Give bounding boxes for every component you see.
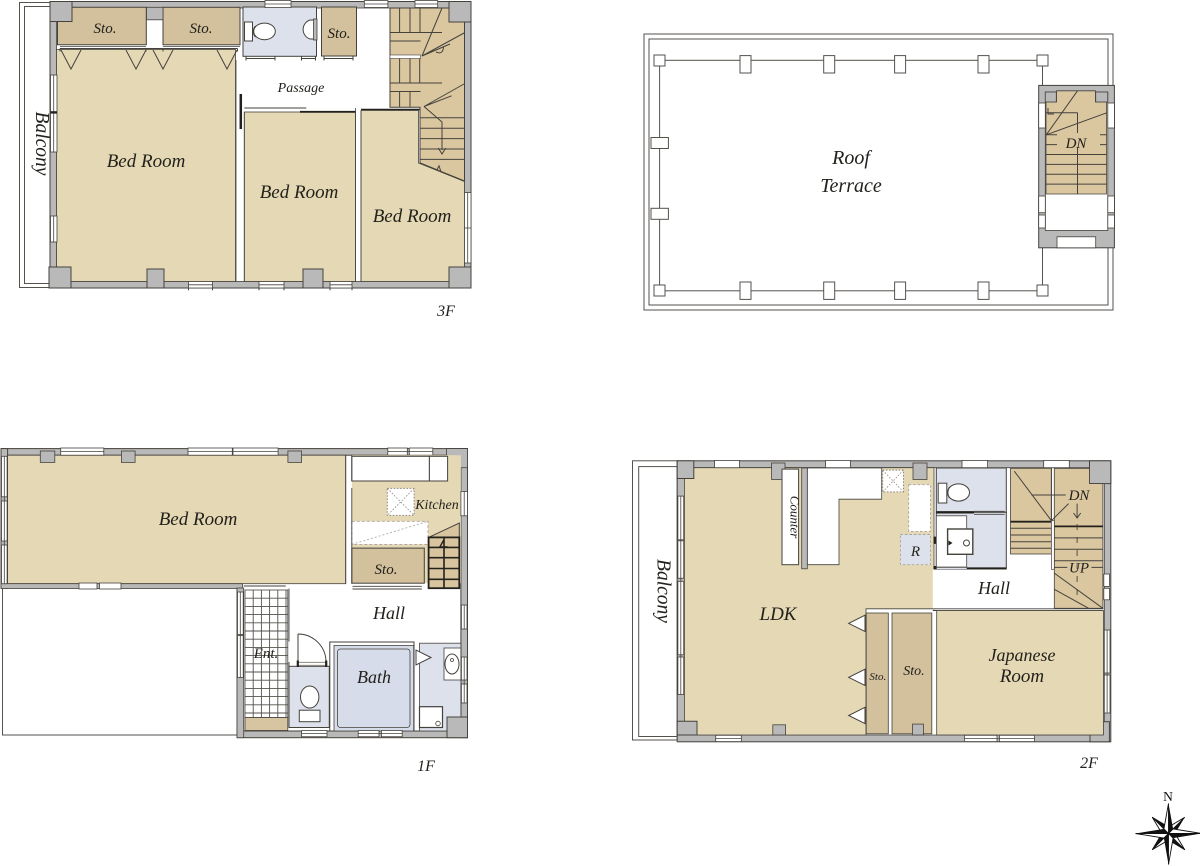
svg-text:Hall: Hall (977, 578, 1010, 598)
svg-text:Balcony: Balcony (653, 559, 674, 623)
svg-text:Passage: Passage (277, 81, 325, 96)
svg-text:R: R (910, 544, 920, 560)
svg-text:Room: Room (999, 666, 1044, 687)
svg-text:Sto.: Sto. (869, 671, 886, 683)
svg-text:LDK: LDK (759, 604, 798, 625)
svg-text:Bath: Bath (357, 667, 391, 687)
svg-text:Bed Room: Bed Room (107, 151, 186, 172)
svg-text:Japanese: Japanese (989, 645, 1056, 665)
svg-text:Sto.: Sto. (903, 664, 924, 679)
svg-text:2F: 2F (1080, 755, 1098, 772)
svg-text:N: N (1163, 789, 1173, 804)
svg-text:DN: DN (1068, 488, 1091, 504)
svg-text:UP: UP (1069, 561, 1089, 577)
svg-text:3F: 3F (436, 303, 455, 320)
svg-text:Bed Room: Bed Room (159, 509, 238, 530)
svg-text:Sto.: Sto. (328, 26, 351, 42)
svg-text:Balcony: Balcony (31, 112, 52, 176)
svg-text:DN: DN (1065, 136, 1088, 152)
svg-text:Bed Room: Bed Room (373, 206, 452, 227)
svg-text:Ent.: Ent. (253, 646, 279, 662)
svg-text:Kitchen: Kitchen (414, 498, 459, 513)
svg-text:Counter: Counter (788, 496, 803, 540)
svg-text:1F: 1F (417, 758, 435, 775)
svg-text:Sto.: Sto. (190, 21, 213, 37)
svg-text:Terrace: Terrace (820, 175, 882, 197)
svg-text:Sto.: Sto. (375, 562, 398, 578)
svg-text:Bed Room: Bed Room (260, 182, 339, 203)
svg-text:Hall: Hall (372, 603, 405, 623)
svg-text:Roof: Roof (831, 147, 872, 169)
svg-text:Sto.: Sto. (94, 21, 117, 37)
